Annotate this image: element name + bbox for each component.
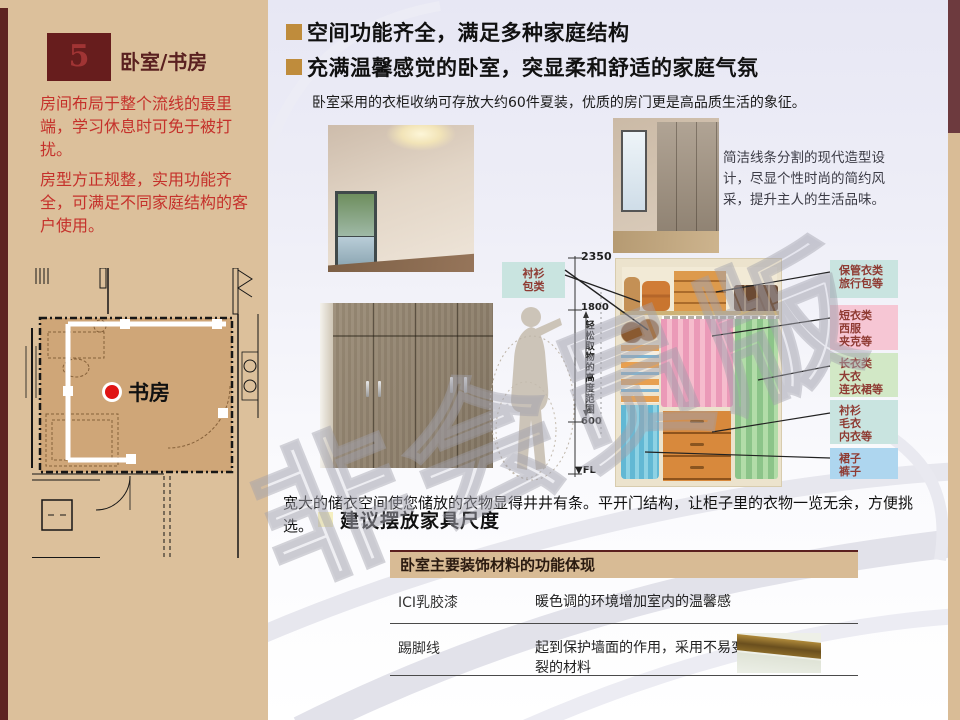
reach-range-label: 轻松取物的高度范围 xyxy=(581,320,595,415)
floorplan-room-label: 书房 xyxy=(128,381,170,405)
label-short-clothes: 短衣类西服夹克等 xyxy=(830,305,898,350)
top-right-maroon-strip xyxy=(948,0,960,133)
window xyxy=(335,191,377,269)
sidebar-paragraph-1: 房间布局于整个流线的最里端，学习休息时可免于被打扰。 xyxy=(40,92,248,161)
square-bullet-icon xyxy=(318,512,333,527)
header-line-2: 充满温馨感觉的卧室，突显柔和舒适的家庭气氛 xyxy=(286,56,759,80)
square-bullet-icon xyxy=(286,24,302,40)
drawers xyxy=(663,411,731,481)
table-divider xyxy=(390,623,858,624)
closed-wardrobe-photo xyxy=(320,303,493,468)
section-number: 5 xyxy=(69,39,90,74)
table-title: 卧室主要装饰材料的功能体现 xyxy=(390,552,858,578)
label-storage-travel: 保管衣类旅行包等 xyxy=(830,260,898,298)
shoe-shelf xyxy=(621,317,659,343)
dim-1800: 1800 xyxy=(581,302,609,313)
dim-2350: 2350 xyxy=(581,250,612,263)
wood-floor xyxy=(613,231,719,253)
built-in-wardrobe xyxy=(657,122,719,234)
label-long-clothes: 长衣类大衣连衣裙等 xyxy=(830,353,898,397)
label-shirts-bags: 衬衫 包类 xyxy=(502,262,565,298)
dim-floor-level: ▼FL xyxy=(575,465,596,476)
header-line-1: 空间功能齐全，满足多种家庭结构 xyxy=(286,21,630,45)
label-skirts-pants: 裙子裤子 xyxy=(830,448,898,479)
skirting-photo xyxy=(737,633,821,673)
room-marker-dot xyxy=(105,385,119,399)
square-bullet-icon xyxy=(286,59,302,75)
section-title: 卧室/书房 xyxy=(120,46,207,75)
floorplan: 书房 xyxy=(12,268,260,558)
intro-text: 卧室采用的衣柜收纳可存放大约60件夏装，优质的房门更是高品质生活的象征。 xyxy=(312,92,806,112)
window-light xyxy=(320,303,333,468)
wardrobe-interior-photo xyxy=(615,258,782,487)
sidebar-paragraph-2: 房型方正规整，实用功能齐全，可满足不同家庭结构的客户使用。 xyxy=(40,168,248,237)
table-row-name: ICI乳胶漆 xyxy=(398,592,458,612)
right-tan-strip xyxy=(948,133,960,720)
header-text-1: 空间功能齐全，满足多种家庭结构 xyxy=(307,21,630,45)
wardrobe-doors xyxy=(333,303,493,468)
dim-600: 600 xyxy=(581,416,602,427)
table-row-desc: 暖色调的环境增加室内的温馨感 xyxy=(535,592,835,612)
sidebar-left-accent-bar xyxy=(0,8,8,720)
label-shirts-underwear: 衬衫毛衣内衣等 xyxy=(830,400,898,444)
ceiling-light xyxy=(386,125,456,151)
wardrobe-caption: 简洁线条分割的现代造型设计，尽显个性时尚的简约风采，提升主人的生活品味。 xyxy=(723,148,905,211)
blue-skirts xyxy=(621,405,659,479)
top-shelf xyxy=(622,267,777,311)
slide: 5 卧室/书房 房间布局于整个流线的最里端，学习休息时可免于被打扰。 房型方正规… xyxy=(0,0,960,720)
window xyxy=(621,130,647,212)
folded-clothes xyxy=(621,345,659,403)
header-text-2: 充满温馨感觉的卧室，突显柔和舒适的家庭气氛 xyxy=(307,56,759,80)
green-long-clothes xyxy=(735,319,778,479)
table-row-name: 踢脚线 xyxy=(398,638,440,658)
pink-short-clothes xyxy=(661,319,733,407)
sidebar: 5 卧室/书房 房间布局于整个流线的最里端，学习休息时可免于被打扰。 房型方正规… xyxy=(0,0,268,720)
table-divider xyxy=(390,675,858,676)
section-heading-text: 建议摆放家具尺度 xyxy=(340,506,500,533)
section-heading: 建议摆放家具尺度 xyxy=(318,506,500,533)
wardrobe-room-photo xyxy=(613,118,719,253)
section-number-badge: 5 xyxy=(47,33,111,81)
bedroom-photo xyxy=(328,125,474,272)
